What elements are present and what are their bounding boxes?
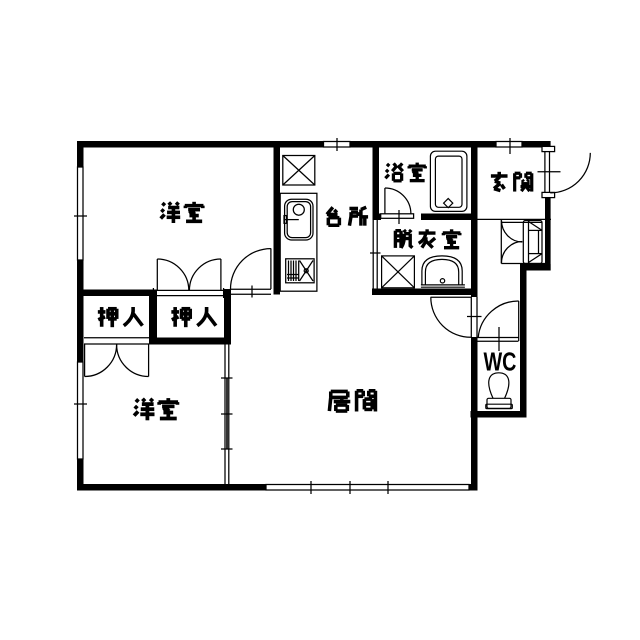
- svg-text:WC: WC: [484, 347, 517, 376]
